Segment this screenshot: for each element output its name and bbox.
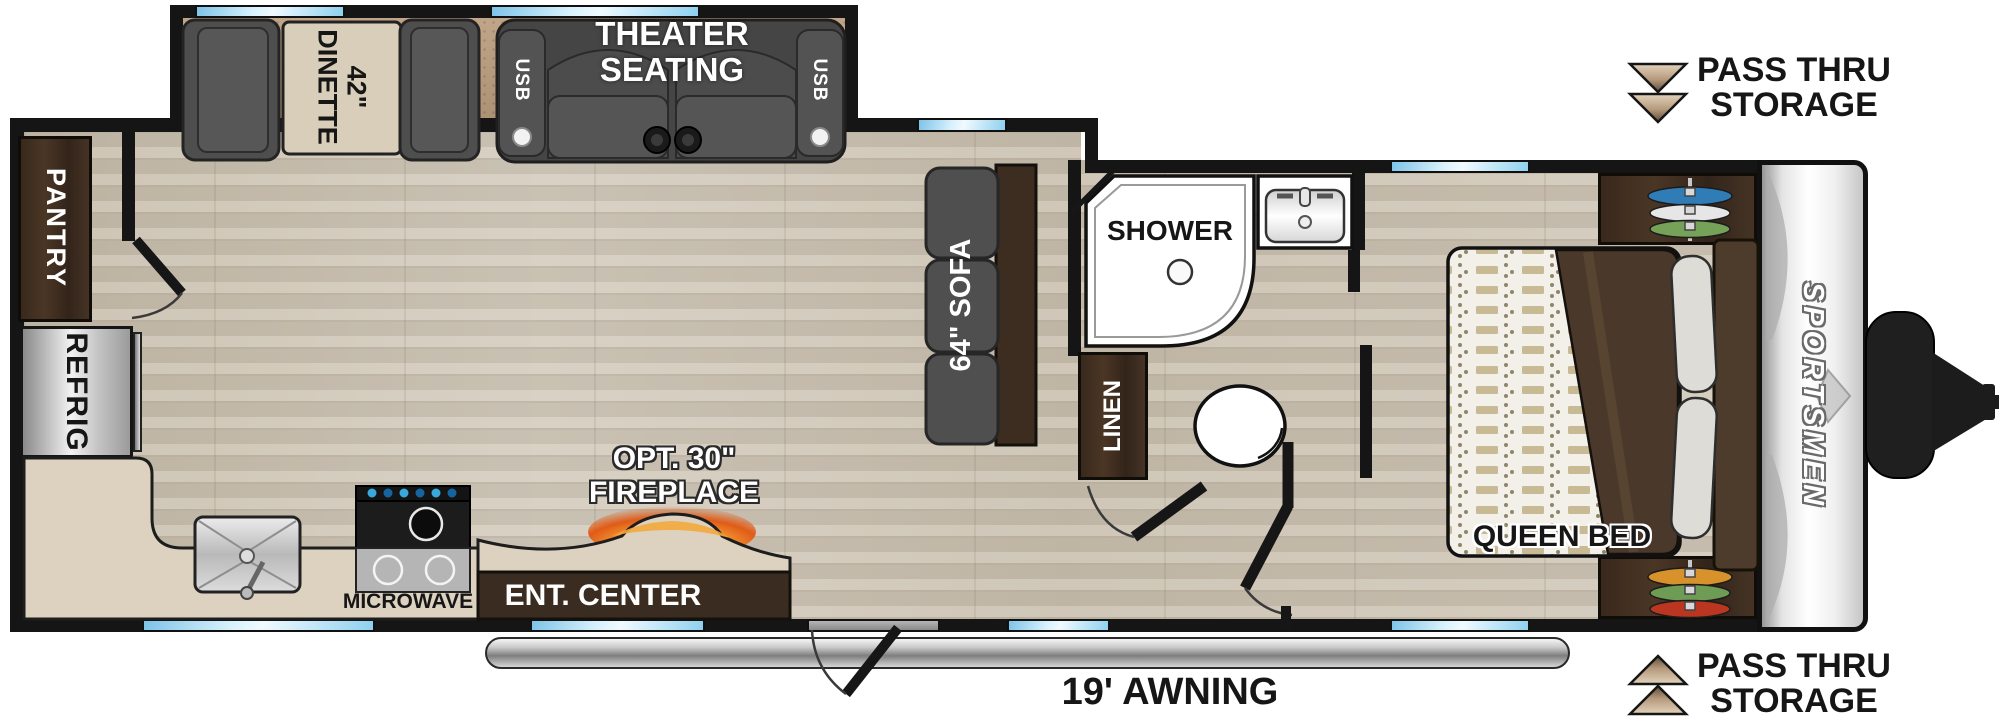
refrig-label: REFRIG bbox=[59, 322, 93, 462]
floorplan-canvas: PANTRY REFRIG 42" DINETTE USB USB THEATE… bbox=[0, 0, 2000, 719]
brand-logo: SPORTSMEN bbox=[1795, 218, 1829, 574]
fireplace-label: OPT. 30"FIREPLACE bbox=[574, 440, 774, 512]
pantry-door bbox=[132, 240, 182, 318]
a-frame-tongue bbox=[1932, 352, 1988, 452]
pass-thru-top-label: PASS THRUSTORAGE bbox=[1688, 50, 1900, 126]
awning-label: 19' AWNING bbox=[1040, 672, 1300, 714]
stove bbox=[356, 486, 470, 592]
shower-label: SHOWER bbox=[1090, 214, 1250, 248]
wardrobe-top-hangers bbox=[1648, 178, 1732, 241]
theater-seating-label: THEATERSEATING bbox=[522, 14, 822, 90]
pass-thru-arrows-top bbox=[1630, 64, 1686, 122]
pantry-label: PANTRY bbox=[40, 147, 70, 309]
shower-pan bbox=[1070, 170, 1254, 346]
pass-thru-bottom-label: PASS THRUSTORAGE bbox=[1688, 648, 1900, 719]
linen-label: LINEN bbox=[1100, 360, 1126, 472]
sofa-label: 64" SOFA bbox=[945, 205, 979, 405]
trailer-hitch bbox=[1866, 312, 1999, 478]
usb-port-dot-icon bbox=[513, 128, 531, 146]
microwave-label: MICROWAVE bbox=[322, 591, 494, 613]
usb-port-dot-icon bbox=[811, 128, 829, 146]
propane-tank-cover bbox=[1866, 312, 1934, 478]
queen-bed-label: QUEEN BED bbox=[1440, 520, 1684, 554]
bathroom-sink bbox=[1258, 176, 1352, 248]
toilet bbox=[1195, 386, 1285, 466]
ent-center-label: ENT. CENTER bbox=[478, 578, 728, 614]
pass-thru-arrows-bottom bbox=[1630, 656, 1686, 714]
dinette-label: 42" DINETTE bbox=[313, 10, 371, 165]
sofa bbox=[926, 165, 1036, 445]
kitchen-sink bbox=[195, 517, 300, 599]
entry-door bbox=[812, 628, 898, 694]
